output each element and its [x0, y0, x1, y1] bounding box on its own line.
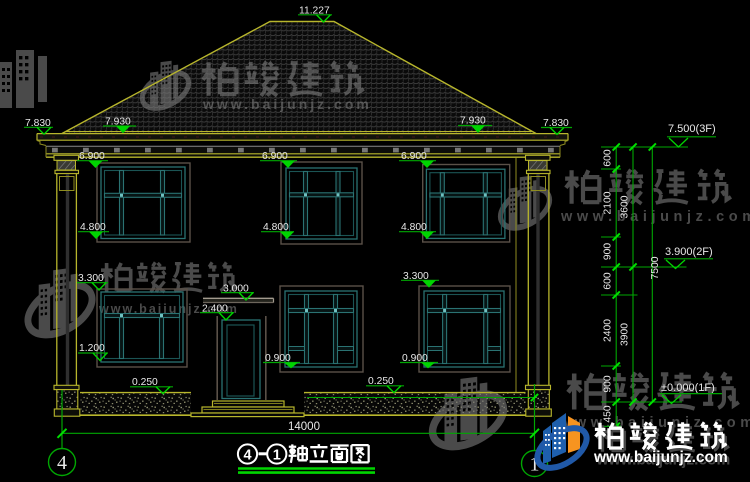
svg-text:7500: 7500 [650, 256, 661, 279]
svg-text:www.baijunjz.com: www.baijunjz.com [202, 96, 372, 112]
svg-text:www.baijunjz.com: www.baijunjz.com [593, 449, 728, 466]
svg-text:4: 4 [57, 452, 67, 474]
svg-text:2100: 2100 [603, 191, 614, 214]
svg-text:450: 450 [603, 405, 614, 422]
svg-text:900: 900 [603, 375, 614, 392]
svg-text:3600: 3600 [620, 195, 631, 218]
svg-text:1.200: 1.200 [79, 343, 105, 354]
svg-text:7.930: 7.930 [460, 116, 486, 127]
svg-text:1: 1 [273, 448, 281, 464]
svg-text:3900: 3900 [620, 323, 631, 346]
svg-text:www.baijunjz.com: www.baijunjz.com [560, 209, 750, 225]
svg-text:600: 600 [603, 272, 614, 289]
svg-text:4: 4 [243, 448, 251, 464]
svg-text:7.500(3F): 7.500(3F) [668, 123, 716, 135]
svg-text:900: 900 [603, 243, 614, 260]
svg-text:±0.000(1F): ±0.000(1F) [661, 382, 715, 394]
svg-text:3.900(2F): 3.900(2F) [665, 246, 713, 258]
svg-text:600: 600 [603, 149, 614, 166]
svg-text:2400: 2400 [603, 319, 614, 342]
svg-text:14000: 14000 [288, 421, 320, 433]
